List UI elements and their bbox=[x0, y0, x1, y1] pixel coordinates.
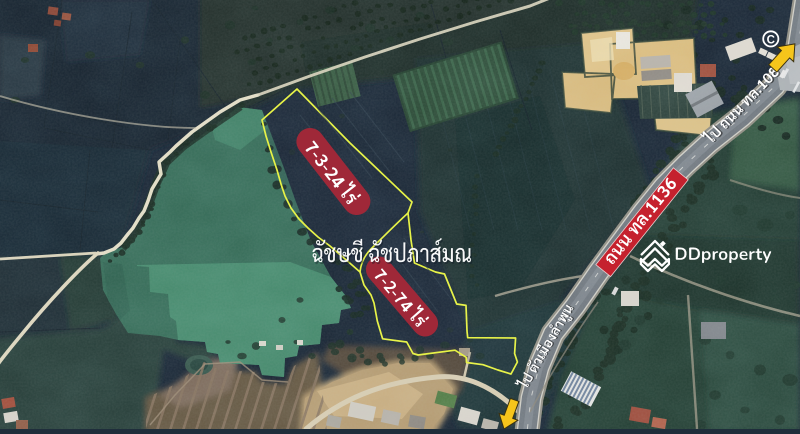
svg-text:C: C bbox=[767, 34, 775, 46]
